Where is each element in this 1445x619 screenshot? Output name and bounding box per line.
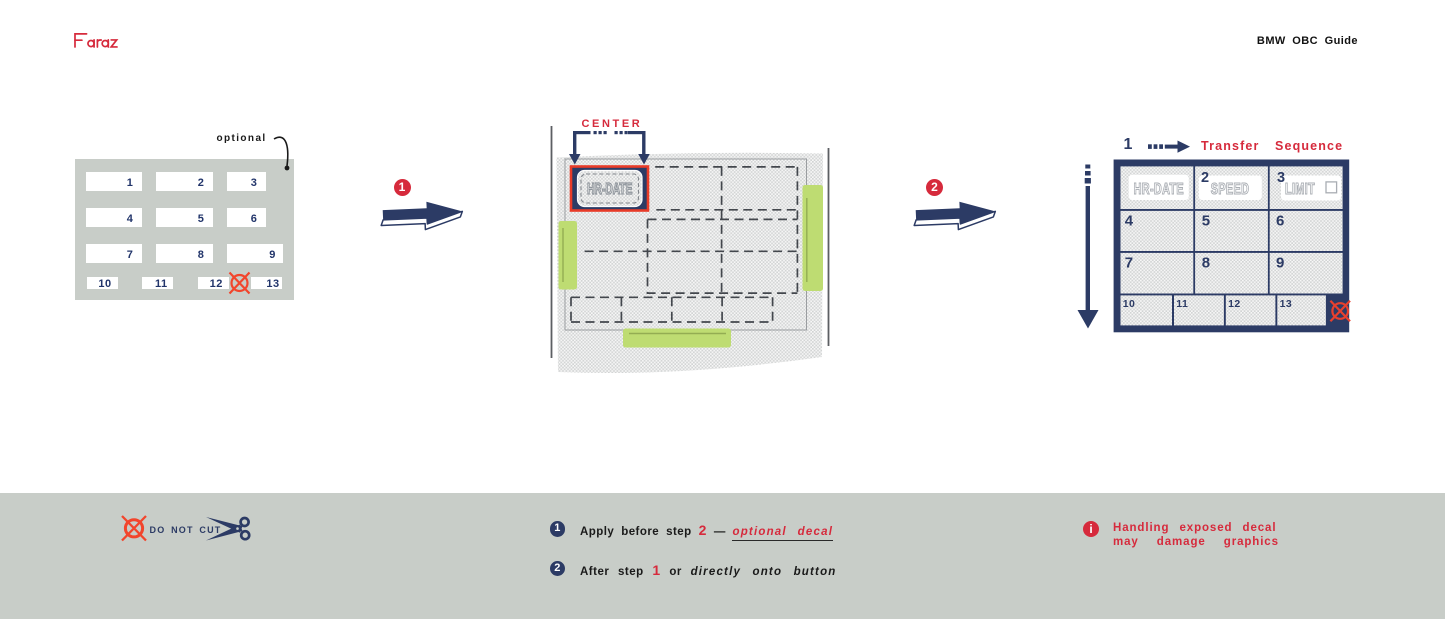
svg-text:9: 9 <box>1276 255 1284 272</box>
svg-text:6: 6 <box>1276 213 1284 230</box>
svg-text:4: 4 <box>1125 213 1134 230</box>
svg-text:10: 10 <box>98 278 111 290</box>
svg-text:HR-DATE: HR-DATE <box>587 180 632 198</box>
svg-text:2: 2 <box>198 177 205 189</box>
svg-text:13: 13 <box>1280 298 1292 310</box>
svg-text:3: 3 <box>251 177 258 189</box>
svg-text:10: 10 <box>1123 298 1135 310</box>
svg-text:12: 12 <box>1228 298 1240 310</box>
svg-text:6: 6 <box>251 213 258 225</box>
svg-text:CENTER: CENTER <box>582 118 643 130</box>
svg-text:1: 1 <box>127 177 134 189</box>
svg-text:SPEED: SPEED <box>1211 180 1249 197</box>
svg-text:5: 5 <box>1202 213 1210 230</box>
svg-text:11: 11 <box>155 278 168 290</box>
svg-text:11: 11 <box>1176 298 1188 310</box>
svg-text:HR-DATE: HR-DATE <box>1134 180 1184 197</box>
svg-text:7: 7 <box>127 249 134 261</box>
svg-text:8: 8 <box>198 249 205 261</box>
svg-text:12: 12 <box>210 278 223 290</box>
svg-text:9: 9 <box>269 249 276 261</box>
svg-text:8: 8 <box>1202 255 1210 272</box>
svg-text:5: 5 <box>198 213 205 225</box>
svg-text:2: 2 <box>1201 170 1209 186</box>
svg-text:4: 4 <box>127 213 134 225</box>
svg-text:7: 7 <box>1125 255 1133 272</box>
svg-text:3: 3 <box>1277 170 1285 186</box>
svg-text:13: 13 <box>266 278 279 290</box>
svg-text:LIMIT: LIMIT <box>1285 180 1315 197</box>
